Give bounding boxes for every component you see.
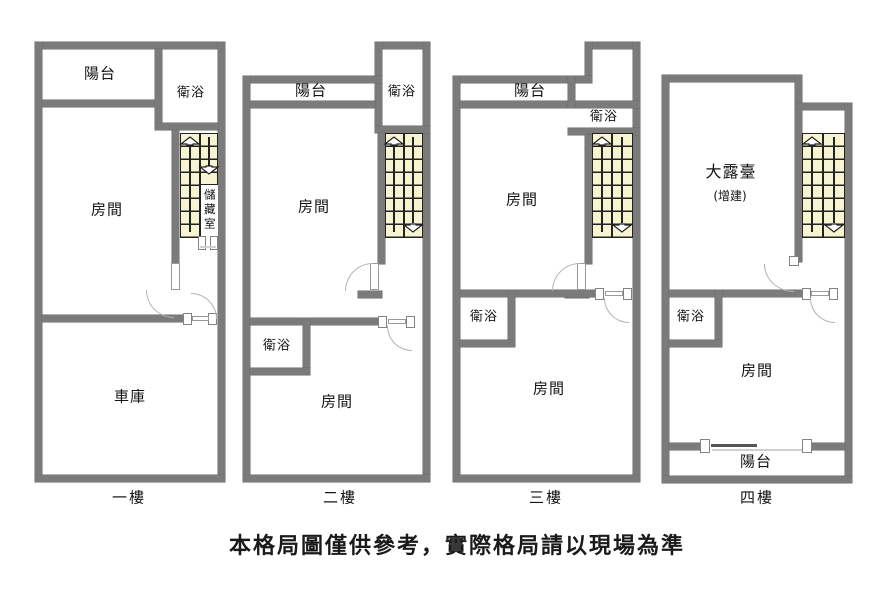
f4-sliding-door-panel (711, 444, 757, 447)
f1-bath-wall-bottom (155, 123, 218, 130)
f1-balcony-wall (42, 100, 158, 107)
f3-bathroom-top-label: 衛浴 (590, 111, 618, 124)
f1-stair-door-leaf (171, 263, 180, 290)
f2-room-divider-wall (250, 318, 380, 325)
f3-stairs-up-line (601, 146, 603, 232)
f2-stairs-up-line (393, 146, 395, 232)
f1-wall-top (35, 42, 225, 49)
f2-lowbath-wall-right (303, 318, 310, 375)
f1-stairs-up-line (189, 146, 191, 232)
f3-stair-door-swing (552, 263, 580, 291)
f2-bath-wall-bottom (375, 126, 430, 133)
f4-sliding-door-jamb (700, 439, 710, 453)
f2-wall-protrusion-top (375, 42, 430, 49)
f1-stair-shaft-wall (172, 130, 179, 264)
f3-wall-right (633, 42, 640, 482)
f4-balcony-wall-right (811, 443, 845, 450)
f2-stairs-up-arrow-icon (383, 135, 405, 146)
f3-balcony-stub (568, 76, 575, 108)
f4-floor-name: 四樓 (740, 491, 774, 506)
f1-storage-door-jamb (210, 236, 218, 250)
f3-stairs-up-arrow-icon (591, 135, 613, 146)
f3-wall-left (453, 76, 460, 482)
f4-room-door-swing (810, 298, 835, 323)
f3-balcony-wall (460, 101, 640, 108)
f3-room-bottom-label: 房間 (533, 382, 565, 397)
f2-balcony-wall (250, 101, 375, 108)
f4-room-divider-wall (669, 290, 804, 297)
f2-stairs-down-arrow-icon (402, 223, 424, 234)
f3-wall-bottom (453, 475, 640, 482)
f1-wall-left (35, 42, 42, 482)
f1-storage-door-jamb (198, 236, 206, 250)
f1-room-label: 房間 (91, 203, 123, 218)
f4-lowbath-wall-bottom (669, 340, 722, 347)
f1-balcony-label: 陽台 (84, 67, 116, 82)
f1-storage-label: 儲藏室 (203, 188, 215, 232)
f4-sliding-door-jamb (802, 439, 812, 453)
f2-room-door-leaf (388, 319, 406, 324)
f4-bathroom-mid-label: 衛浴 (677, 311, 705, 324)
f3-room-door-leaf (605, 291, 623, 296)
f4-stairs-up-line (811, 146, 813, 232)
f1-bathroom-label: 衛浴 (177, 87, 205, 100)
f1-garage-door-swing (191, 293, 217, 319)
f4-stair-shaft-wall (795, 110, 802, 262)
f2-stairs-down-line (412, 137, 414, 223)
f2-room-door-swing (387, 326, 412, 351)
f2-bathroom-top-label: 衛浴 (388, 86, 416, 99)
f1-garage-divider-wall (42, 315, 184, 322)
f1-stairs-down-arrow-icon (198, 165, 220, 176)
f2-bathroom-mid-label: 衛浴 (263, 340, 291, 353)
f2-wall-bottom (243, 475, 430, 482)
f4-terrace-note-label: (增建) (713, 190, 746, 202)
f1-bath-wall-left (155, 49, 162, 130)
f4-balcony-bottom-label: 陽台 (740, 455, 772, 470)
f3-lowbath-wall-bottom (460, 340, 515, 347)
f4-wall-top (662, 75, 802, 82)
f2-wall-stub (358, 291, 382, 298)
f3-floor-name: 三樓 (529, 491, 563, 506)
f4-room-door-leaf (811, 291, 829, 296)
f3-room-door-swing (604, 298, 629, 323)
f2-room-top-label: 房間 (298, 200, 330, 215)
f2-balcony-label: 陽台 (295, 84, 327, 99)
f3-bathroom-mid-label: 衛浴 (470, 311, 498, 324)
f4-terrace-label: 大露臺 (705, 164, 756, 180)
f2-stair-shaft-wall (378, 133, 385, 264)
f1-stairs-up-arrow-icon (179, 135, 201, 146)
f1-stair-door-swing (146, 290, 174, 318)
f1-wall-bottom (35, 475, 225, 482)
f3-lowbath-wall-right (508, 290, 515, 347)
f3-wall-protrusion-top (585, 42, 640, 49)
f3-room-door-jamb (595, 288, 604, 300)
f4-stair-column-top (795, 103, 852, 110)
f1-floor-name: 一樓 (112, 491, 146, 506)
f1-storage-door-leaf (200, 246, 216, 248)
f3-stair-shaft-wall (585, 135, 592, 264)
f3-room-top-label: 房間 (506, 193, 538, 208)
f1-garage-label: 車庫 (114, 390, 146, 405)
f2-room-door-jamb (378, 316, 387, 328)
f2-room-bottom-label: 房間 (321, 395, 353, 410)
floor-plan-image: 陽台 衛浴 房間 儲藏室 車庫 一樓 陽台 衛浴 房間 衛浴 房間 二樓 (0, 0, 889, 601)
f3-balcony-label: 陽台 (514, 84, 546, 99)
f2-floor-name: 二樓 (323, 491, 357, 506)
f4-wall-left (662, 75, 669, 483)
f3-room-divider-wall (460, 290, 597, 297)
f4-stair-door-swing (764, 264, 794, 292)
f4-lowbath-wall-right (715, 290, 722, 347)
f2-wall-right (423, 42, 430, 482)
f2-wall-protrusion-left (375, 42, 382, 133)
f4-wall-bottom (662, 476, 852, 483)
f2-stair-door-swing (345, 263, 373, 291)
f4-room-label: 房間 (741, 364, 773, 379)
disclaimer-text: 本格局圖僅供參考，實際格局請以現場為準 (229, 536, 685, 558)
f2-lowbath-wall-bottom (250, 368, 310, 375)
f4-stairs-down-line (833, 137, 835, 223)
f2-wall-left (243, 76, 250, 482)
f4-sliding-door-track (712, 449, 802, 451)
f4-stairs-down-arrow-icon (823, 223, 845, 234)
f4-wall-right (845, 103, 852, 483)
f1-wall-right (218, 42, 225, 482)
f3-stairs-down-line (621, 137, 623, 223)
f3-stairs-down-arrow-icon (611, 223, 633, 234)
f4-stairs-up-arrow-icon (801, 135, 823, 146)
f1-stairs-down-line (208, 137, 210, 167)
